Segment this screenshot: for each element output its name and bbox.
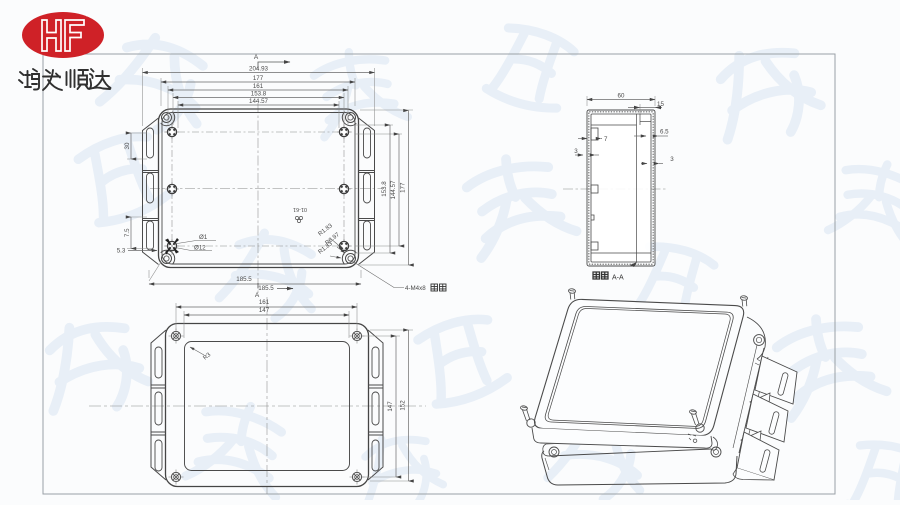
svg-text:147: 147 <box>387 401 394 412</box>
svg-text:A-A: A-A <box>612 275 624 282</box>
svg-text:144.57: 144.57 <box>390 180 397 199</box>
svg-text:6.5: 6.5 <box>660 129 669 136</box>
svg-text:3: 3 <box>574 148 578 155</box>
svg-text:5.3: 5.3 <box>117 248 126 255</box>
svg-text:153.8: 153.8 <box>251 91 267 98</box>
svg-text:7: 7 <box>604 136 608 143</box>
svg-text:177: 177 <box>400 182 407 193</box>
svg-text:4-M4x8: 4-M4x8 <box>405 285 426 292</box>
svg-text:185.5: 185.5 <box>236 276 252 283</box>
svg-text:A: A <box>254 54 259 61</box>
svg-text:A: A <box>255 292 260 299</box>
svg-text:147: 147 <box>259 307 270 314</box>
svg-text:161: 161 <box>259 299 270 306</box>
svg-text:7.5: 7.5 <box>124 228 131 237</box>
svg-text:153.8: 153.8 <box>381 181 388 197</box>
svg-text:204.93: 204.93 <box>249 66 268 73</box>
svg-text:185.5: 185.5 <box>258 285 274 292</box>
svg-text:01-61: 01-61 <box>293 206 307 212</box>
svg-text:177: 177 <box>253 75 264 82</box>
svg-text:™: ™ <box>85 14 91 20</box>
svg-text:144.57: 144.57 <box>249 98 268 105</box>
svg-text:152: 152 <box>400 400 407 411</box>
svg-text:161: 161 <box>253 83 264 90</box>
svg-text:60: 60 <box>618 93 625 100</box>
svg-text:Ø1: Ø1 <box>199 234 208 241</box>
svg-text:Ø12: Ø12 <box>194 245 206 252</box>
svg-text:15: 15 <box>657 101 664 108</box>
svg-text:30: 30 <box>124 142 131 149</box>
svg-text:3: 3 <box>670 156 674 163</box>
